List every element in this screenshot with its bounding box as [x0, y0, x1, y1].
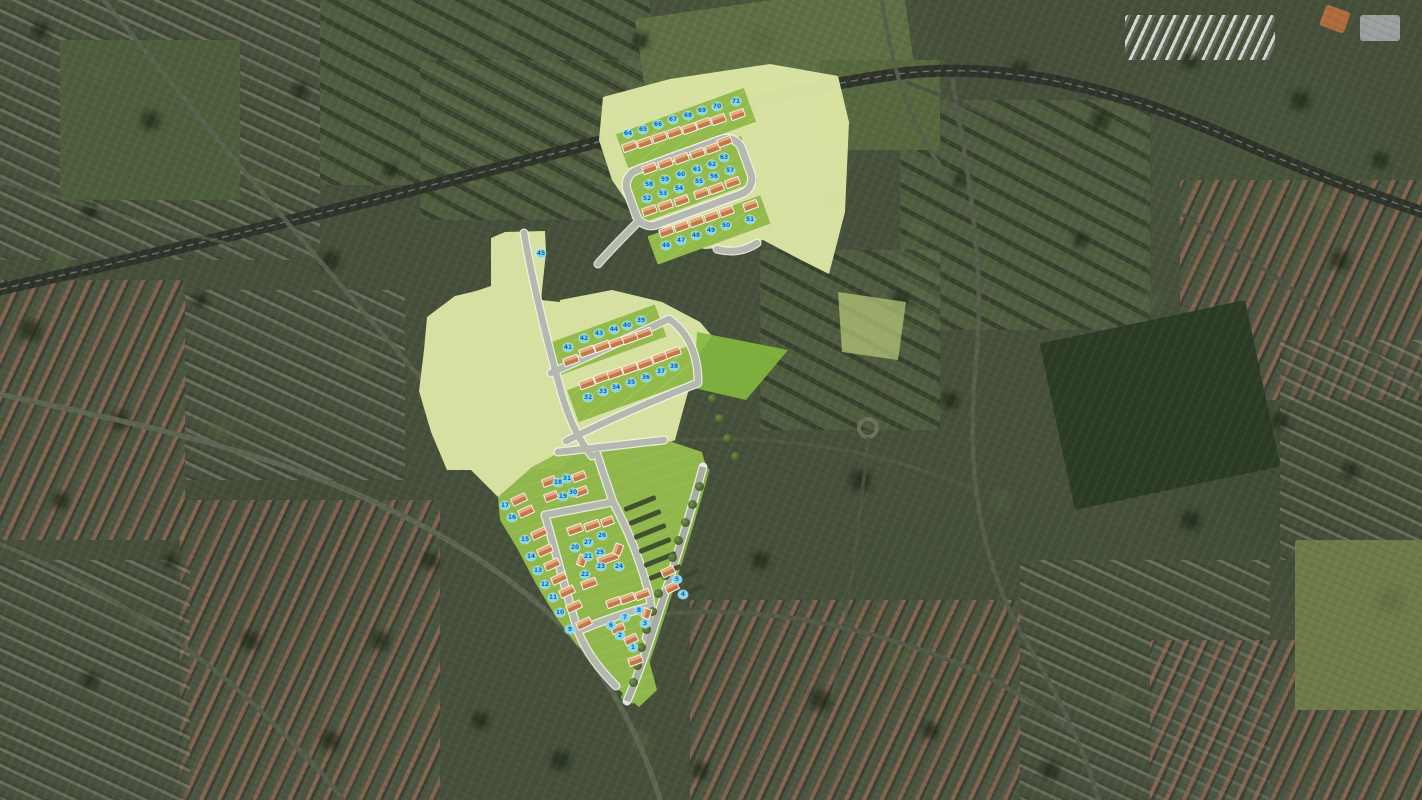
plot-badge[interactable]: 25 — [595, 548, 605, 557]
plot-house — [558, 584, 576, 599]
plot-house — [672, 193, 689, 207]
plot-badge[interactable]: 2 — [615, 631, 625, 640]
plot-badge[interactable]: 70 — [712, 102, 722, 111]
plot-badge[interactable]: 14 — [526, 552, 536, 561]
street-tree — [723, 434, 732, 443]
plot-house — [688, 146, 705, 160]
street-tree — [681, 518, 690, 527]
plot-badge[interactable]: 49 — [706, 226, 716, 235]
plot-badge[interactable]: 34 — [611, 383, 621, 392]
plot-badge[interactable]: 45 — [536, 249, 546, 258]
plot-badge[interactable]: 17 — [500, 501, 510, 510]
plot-badge[interactable]: 58 — [644, 180, 654, 189]
street-tree — [708, 394, 717, 403]
plot-house — [566, 522, 584, 536]
plot-house — [728, 107, 745, 121]
plot-badge[interactable]: 68 — [683, 111, 693, 120]
plot-badge[interactable]: 59 — [660, 175, 670, 184]
plot-house — [536, 543, 554, 558]
plot-house — [665, 125, 682, 139]
street-tree — [731, 452, 740, 461]
plot-badge[interactable]: 7 — [620, 613, 630, 622]
plot-badge[interactable]: 22 — [580, 570, 590, 579]
plot-badge[interactable]: 32 — [583, 393, 593, 402]
plot-badge[interactable]: 39 — [636, 316, 646, 325]
street-tree — [629, 678, 638, 687]
street-tree — [688, 500, 697, 509]
plot-house — [620, 139, 637, 153]
plot-badge[interactable]: 56 — [709, 172, 719, 181]
plot-badge[interactable]: 67 — [668, 115, 678, 124]
plot-house — [633, 587, 650, 601]
plot-badge[interactable]: 60 — [676, 170, 686, 179]
plot-badge[interactable]: 6 — [606, 621, 616, 630]
plot-badge[interactable]: 3 — [640, 619, 650, 628]
street-tree — [668, 553, 677, 562]
plot-badge[interactable]: 11 — [548, 593, 558, 602]
plot-badge[interactable]: 24 — [614, 562, 624, 571]
plot-badge[interactable]: 71 — [731, 97, 741, 106]
plot-house — [635, 326, 653, 340]
plot-house — [640, 203, 657, 217]
aerial-masterplan-view: 4564656667686970715859606162635253545556… — [0, 0, 1422, 800]
street-tree — [654, 589, 663, 598]
plot-badge[interactable]: 20 — [570, 543, 580, 552]
plot-badge[interactable]: 54 — [674, 184, 684, 193]
hedgerow — [686, 583, 704, 595]
plot-house — [656, 156, 673, 170]
plot-badge[interactable]: 50 — [721, 221, 731, 230]
plot-house — [687, 214, 704, 228]
plot-badge[interactable]: 30 — [568, 488, 578, 497]
plot-markers-layer: 4564656667686970715859606162635253545556… — [0, 0, 1422, 800]
plot-house — [657, 224, 674, 238]
plot-badge[interactable]: 57 — [725, 166, 735, 175]
street-tree — [674, 536, 683, 545]
hedgerow — [682, 567, 700, 579]
plot-badge[interactable]: 62 — [707, 160, 717, 169]
plot-badge[interactable]: 13 — [533, 566, 543, 575]
street-tree — [715, 414, 724, 423]
plot-house — [517, 504, 535, 519]
plot-house — [702, 209, 719, 223]
plot-badge[interactable]: 19 — [558, 492, 568, 501]
plot-house — [543, 557, 561, 572]
plot-house — [635, 135, 652, 149]
plot-badge[interactable]: 52 — [642, 194, 652, 203]
plot-house — [707, 181, 724, 195]
plot-badge[interactable]: 12 — [540, 580, 550, 589]
plot-house — [612, 542, 625, 556]
plot-house — [640, 161, 657, 175]
plot-badge[interactable]: 40 — [622, 321, 632, 330]
plot-badge[interactable]: 46 — [661, 241, 671, 250]
plot-house — [672, 151, 689, 165]
plot-badge[interactable]: 4 — [678, 590, 688, 599]
plot-badge[interactable]: 53 — [658, 189, 668, 198]
plot-badge[interactable]: 35 — [626, 378, 636, 387]
hedgerow — [628, 508, 661, 525]
plot-house — [565, 599, 583, 614]
plot-badge[interactable]: 38 — [669, 362, 679, 371]
plot-house — [543, 489, 559, 502]
street-tree — [695, 482, 704, 491]
plot-house — [692, 186, 709, 200]
plot-badge[interactable]: 9 — [565, 625, 575, 634]
plot-badge[interactable]: 31 — [562, 474, 572, 483]
plot-badge[interactable]: 23 — [596, 562, 606, 571]
plot-badge[interactable]: 37 — [656, 367, 666, 376]
plot-badge[interactable]: 27 — [583, 538, 593, 547]
plot-house — [741, 198, 758, 212]
plot-badge[interactable]: 26 — [597, 531, 607, 540]
plot-badge[interactable]: 1 — [628, 643, 638, 652]
plot-house — [599, 515, 614, 528]
plot-house — [510, 492, 528, 507]
plot-badge[interactable]: 61 — [692, 165, 702, 174]
hedgerow — [623, 494, 656, 511]
plot-house — [717, 204, 734, 218]
plot-badge[interactable]: 64 — [623, 129, 633, 138]
plot-badge[interactable]: 10 — [555, 608, 565, 617]
plot-badge[interactable]: 44 — [609, 325, 619, 334]
plot-house — [550, 571, 568, 586]
plot-badge[interactable]: 55 — [694, 177, 704, 186]
plot-house — [664, 345, 682, 359]
plot-badge[interactable]: 66 — [653, 120, 663, 129]
plot-badge[interactable]: 51 — [745, 215, 755, 224]
plot-house — [650, 130, 667, 144]
plot-badge[interactable]: 65 — [638, 125, 648, 134]
plot-house — [709, 112, 726, 126]
plot-house — [618, 591, 635, 605]
plot-badge[interactable]: 43 — [594, 329, 604, 338]
plot-badge[interactable]: 63 — [719, 153, 729, 162]
plot-house — [530, 526, 548, 541]
plot-badge[interactable]: 47 — [676, 236, 686, 245]
plot-badge[interactable]: 69 — [697, 106, 707, 115]
plot-badge[interactable]: 15 — [520, 535, 530, 544]
plot-badge[interactable]: 33 — [598, 387, 608, 396]
plot-badge[interactable]: 21 — [583, 552, 593, 561]
plot-badge[interactable]: 41 — [563, 343, 573, 352]
plot-house — [575, 616, 593, 631]
plot-house — [694, 116, 711, 130]
hedgerow — [638, 536, 671, 553]
plot-badge[interactable]: 8 — [634, 606, 644, 615]
plot-house — [583, 518, 601, 532]
plot-badge[interactable]: 36 — [641, 373, 651, 382]
plot-badge[interactable]: 48 — [691, 231, 701, 240]
plot-house — [571, 469, 587, 482]
hedgerow — [633, 522, 666, 539]
plot-house — [672, 219, 689, 233]
plot-badge[interactable]: 5 — [672, 575, 682, 584]
plot-house — [723, 175, 740, 189]
plot-badge[interactable]: 42 — [579, 334, 589, 343]
plot-house — [562, 353, 580, 367]
plot-house — [656, 198, 673, 212]
plot-badge[interactable]: 16 — [507, 513, 517, 522]
plot-house — [715, 134, 732, 148]
